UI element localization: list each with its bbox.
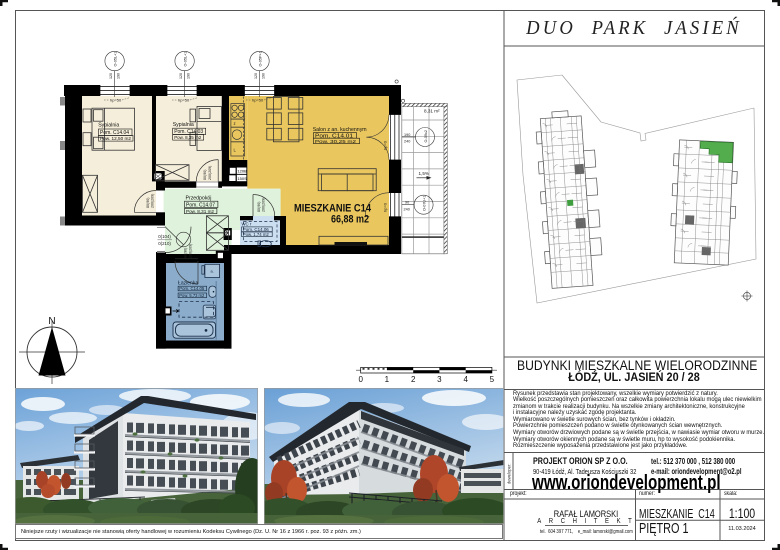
svg-text:z: z xyxy=(234,121,236,126)
svg-text:240: 240 xyxy=(404,140,410,144)
svg-text:200(209): 200(209) xyxy=(188,244,192,258)
svg-text:Pow. 12,50 m2: Pow. 12,50 m2 xyxy=(100,136,131,142)
svg-text:Pow. 8,35 m2: Pow. 8,35 m2 xyxy=(174,135,201,141)
svg-text:80(90): 80(90) xyxy=(203,170,207,180)
svg-text:O-05P+1: O-05P+1 xyxy=(259,51,263,66)
svg-text:190: 190 xyxy=(187,73,191,79)
svg-text:8,31 m²: 8,31 m² xyxy=(424,109,440,114)
svg-text:Pom. C14.07: Pom. C14.07 xyxy=(186,202,215,208)
svg-text:Pow. 8,31 m2: Pow. 8,31 m2 xyxy=(186,209,214,215)
svg-text:Sypialnia: Sypialnia xyxy=(98,123,119,129)
svg-text:O-05L+1: O-05L+1 xyxy=(184,52,188,67)
svg-text:N: N xyxy=(48,316,55,327)
svg-text:80(90): 80(90) xyxy=(257,202,261,212)
svg-text:1,5%: 1,5% xyxy=(419,171,429,176)
svg-text:66,88 m2: 66,88 m2 xyxy=(331,214,369,226)
svg-text:200(209): 200(209) xyxy=(208,166,212,180)
svg-text:1: 1 xyxy=(385,375,390,384)
svg-text:hp=50: hp=50 xyxy=(178,98,190,103)
svg-text:190: 190 xyxy=(262,73,266,79)
svg-text:Pow. 5,73 m2: Pow. 5,73 m2 xyxy=(179,293,204,298)
svg-text:200(209): 200(209) xyxy=(151,194,155,208)
svg-text:120B: 120B xyxy=(237,169,247,174)
svg-text:hp=50: hp=50 xyxy=(110,98,122,103)
svg-text:120: 120 xyxy=(179,73,183,79)
svg-text:O-09x2: O-09x2 xyxy=(424,130,428,142)
svg-text:WC r: WC r xyxy=(242,221,252,226)
svg-text:150S: 150S xyxy=(237,176,247,181)
svg-text:Pom. C14.05: Pom. C14.05 xyxy=(179,286,204,291)
svg-text:190: 190 xyxy=(117,73,121,79)
svg-text:120: 120 xyxy=(254,73,258,79)
svg-text:4: 4 xyxy=(463,375,468,384)
svg-text:0(104): 0(104) xyxy=(158,234,171,239)
svg-text:hp=0: hp=0 xyxy=(383,202,388,212)
svg-text:hp=50: hp=50 xyxy=(252,98,264,103)
svg-text:80(90): 80(90) xyxy=(146,198,150,208)
svg-text:80(90): 80(90) xyxy=(184,248,188,258)
svg-text:120: 120 xyxy=(109,73,113,79)
svg-text:hp=0: hp=0 xyxy=(383,140,388,150)
svg-text:Przedpokój: Przedpokój xyxy=(186,196,212,202)
svg-text:190: 190 xyxy=(404,133,410,137)
svg-text:5: 5 xyxy=(490,375,495,384)
svg-text:O-07U+1: O-07U+1 xyxy=(423,195,427,211)
svg-text:0(210): 0(210) xyxy=(158,241,171,246)
svg-text:2: 2 xyxy=(411,375,416,384)
svg-text:Salon z an. kuchennym: Salon z an. kuchennym xyxy=(313,127,367,133)
svg-text:Pow. 1,74 m2: Pow. 1,74 m2 xyxy=(243,232,270,237)
svg-text:Pow. 30,25 m2: Pow. 30,25 m2 xyxy=(315,139,356,145)
svg-text:200(209): 200(209) xyxy=(262,198,266,212)
svg-text:90: 90 xyxy=(405,201,409,205)
svg-text:240: 240 xyxy=(404,207,410,211)
svg-text:O-05L+1: O-05L+1 xyxy=(114,52,118,67)
svg-text:0: 0 xyxy=(358,375,363,384)
svg-text:deweloper:: deweloper: xyxy=(507,464,512,485)
svg-text:Sypialnia: Sypialnia xyxy=(173,122,194,128)
svg-text:a.: a. xyxy=(211,270,214,274)
svg-text:3: 3 xyxy=(437,375,442,384)
